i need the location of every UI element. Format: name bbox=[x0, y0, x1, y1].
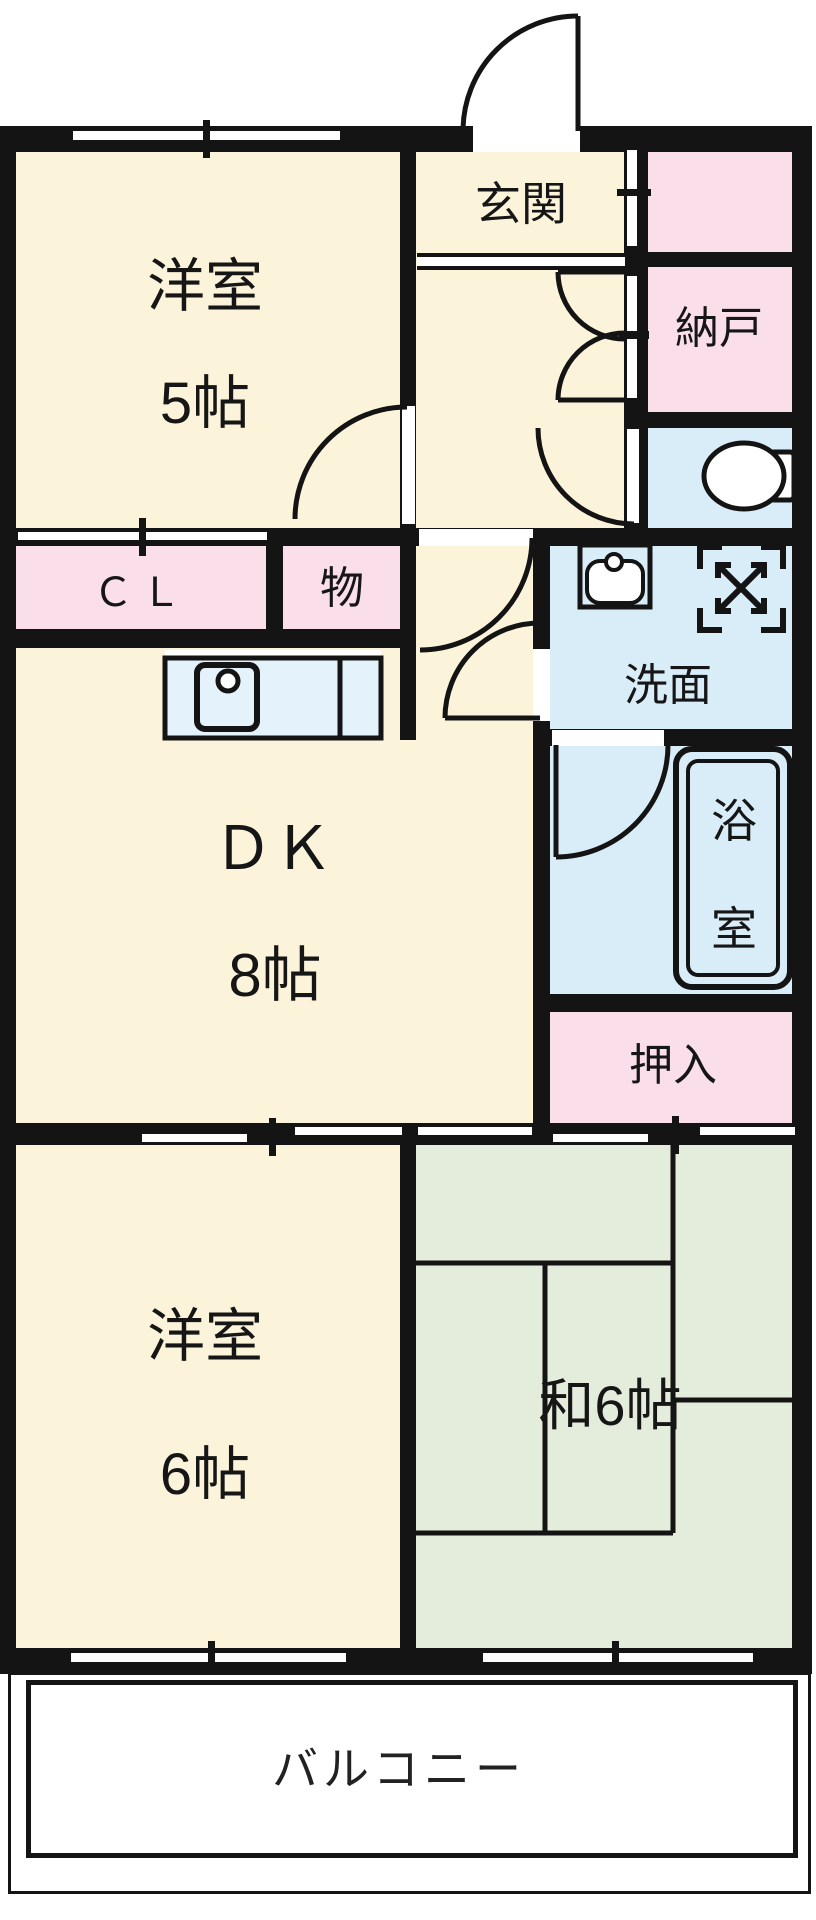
entrance-door-opening bbox=[473, 126, 580, 152]
wall-v-western6-japanese bbox=[400, 1128, 416, 1650]
room-dk bbox=[15, 648, 535, 1125]
closet-top-right-opening bbox=[627, 150, 637, 246]
room-western-5 bbox=[15, 148, 402, 530]
room-western-6 bbox=[15, 1145, 400, 1650]
label-dk-size: 8帖 bbox=[228, 946, 321, 1006]
room-toilet bbox=[648, 428, 792, 530]
wall-h-storeroom-toilet bbox=[624, 412, 792, 428]
washroom-door-opening bbox=[533, 649, 550, 721]
window-top-tick bbox=[203, 120, 210, 158]
label-oshiire: 押入 bbox=[629, 1044, 717, 1088]
room-closet-top-right bbox=[648, 150, 792, 253]
wall-h-bath-oshiire bbox=[533, 994, 792, 1012]
label-western-room6-size: 6帖 bbox=[160, 1446, 250, 1504]
label-closet-mono: 物 bbox=[320, 567, 364, 611]
western5-door-leaf bbox=[402, 406, 415, 524]
room-dk-strip bbox=[415, 545, 535, 650]
label-storeroom: 納戸 bbox=[675, 307, 763, 351]
dk-japanese-opening bbox=[418, 1127, 532, 1135]
toilet-door-leaf bbox=[627, 429, 639, 523]
label-entrance: 玄関 bbox=[475, 181, 567, 227]
wall-left-exterior bbox=[0, 126, 16, 1672]
label-closet-cl: ＣＬ bbox=[93, 573, 189, 613]
wall-h-closet-storeroom bbox=[624, 252, 792, 267]
entrance-door-swing-icon bbox=[463, 16, 578, 131]
oshiire-slide-a bbox=[553, 1134, 648, 1142]
cl-slide-tick bbox=[139, 518, 146, 556]
wall-right-exterior bbox=[792, 126, 812, 1672]
storeroom-door-center-tick bbox=[619, 331, 649, 339]
dk-western6-slide-b bbox=[295, 1127, 402, 1135]
label-bathroom-char2: 室 bbox=[711, 906, 757, 952]
label-balcony: バルコニー bbox=[272, 1746, 526, 1792]
label-washroom: 洗面 bbox=[624, 664, 712, 708]
dk-door-opening bbox=[419, 529, 533, 546]
oshiire-slide-tick bbox=[672, 1116, 679, 1154]
wall-h-below-cl bbox=[14, 629, 416, 648]
floorplan-canvas: 洋室 5帖 玄関 納戸 ＣＬ 物 洗面 浴 室 ＤＫ 8帖 押入 洋室 6帖 和… bbox=[0, 0, 816, 1920]
label-bathroom-char1: 浴 bbox=[711, 798, 757, 844]
label-japanese-room: 和6帖 bbox=[538, 1378, 681, 1434]
label-dk-name: ＤＫ bbox=[213, 819, 333, 879]
wall-v-washroom-left bbox=[533, 545, 550, 1125]
label-western-room6-name: 洋室 bbox=[147, 1308, 263, 1366]
room-bathroom bbox=[550, 745, 792, 995]
dk-western6-slide-a bbox=[142, 1134, 247, 1142]
dk-western6-slide-tick bbox=[269, 1118, 276, 1156]
bathroom-door-opening bbox=[552, 730, 664, 746]
label-western-room5-size: 5帖 bbox=[160, 375, 250, 433]
wall-v-cl-mono-divider bbox=[266, 545, 283, 631]
label-western-room5-name: 洋室 bbox=[147, 258, 263, 316]
oshiire-slide-b bbox=[700, 1127, 795, 1135]
closet-top-right-tick bbox=[617, 189, 651, 196]
